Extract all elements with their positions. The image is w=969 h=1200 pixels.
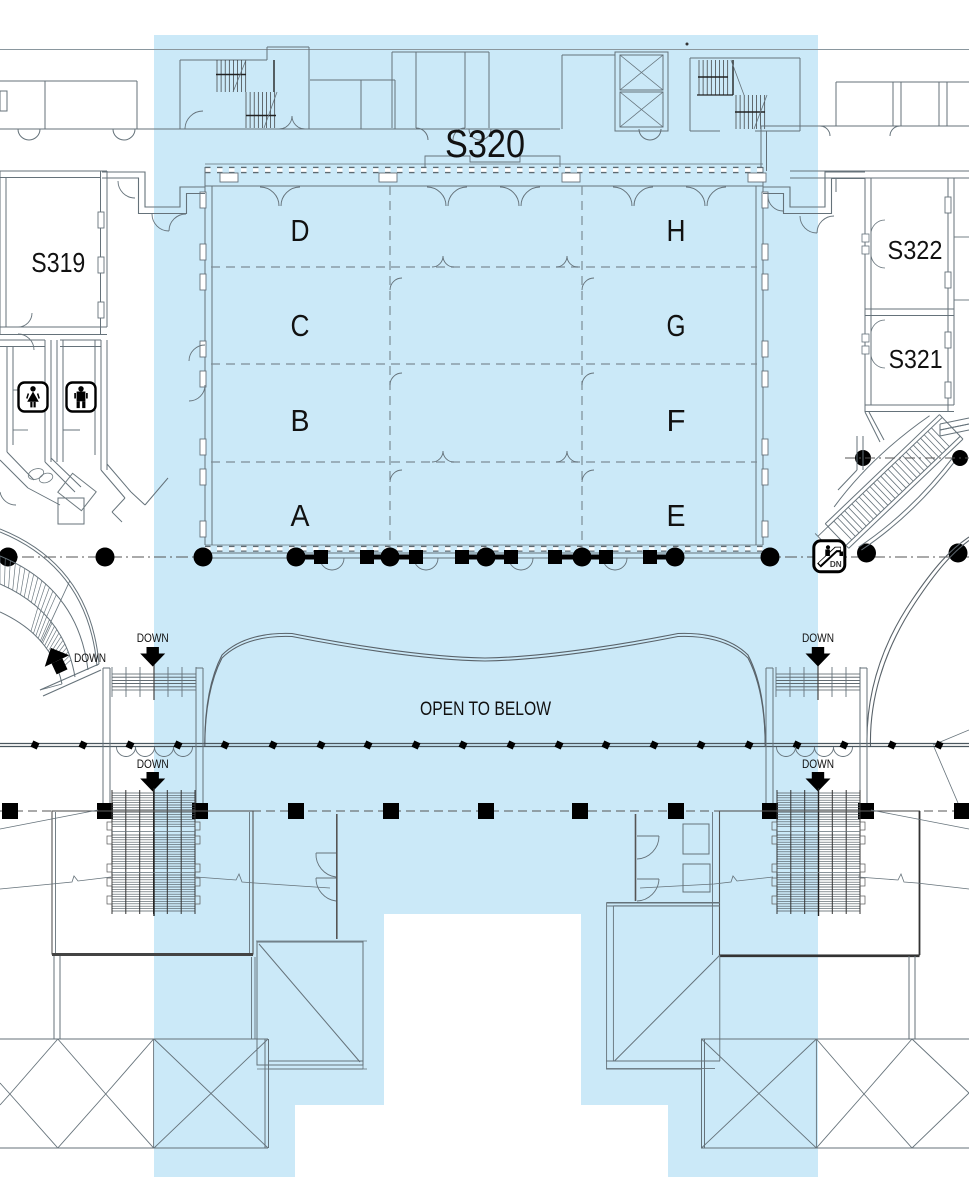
svg-text:S320: S320 xyxy=(445,123,525,166)
svg-text:DOWN: DOWN xyxy=(137,633,169,645)
svg-text:DOWN: DOWN xyxy=(137,759,169,771)
svg-text:E: E xyxy=(667,498,686,533)
svg-text:B: B xyxy=(291,403,310,438)
svg-text:D: D xyxy=(291,213,310,248)
svg-text:G: G xyxy=(667,308,686,343)
svg-text:S322: S322 xyxy=(888,237,943,265)
svg-text:S321: S321 xyxy=(889,346,943,374)
svg-text:OPEN TO BELOW: OPEN TO BELOW xyxy=(420,699,552,720)
svg-text:DOWN: DOWN xyxy=(802,633,834,645)
svg-text:DOWN: DOWN xyxy=(802,759,834,771)
svg-text:S319: S319 xyxy=(31,247,85,278)
svg-text:F: F xyxy=(667,403,686,438)
svg-text:A: A xyxy=(291,498,310,533)
svg-text:H: H xyxy=(667,213,686,248)
svg-text:C: C xyxy=(291,308,310,343)
svg-text:DOWN: DOWN xyxy=(74,653,106,665)
svg-text:DN: DN xyxy=(830,560,842,569)
